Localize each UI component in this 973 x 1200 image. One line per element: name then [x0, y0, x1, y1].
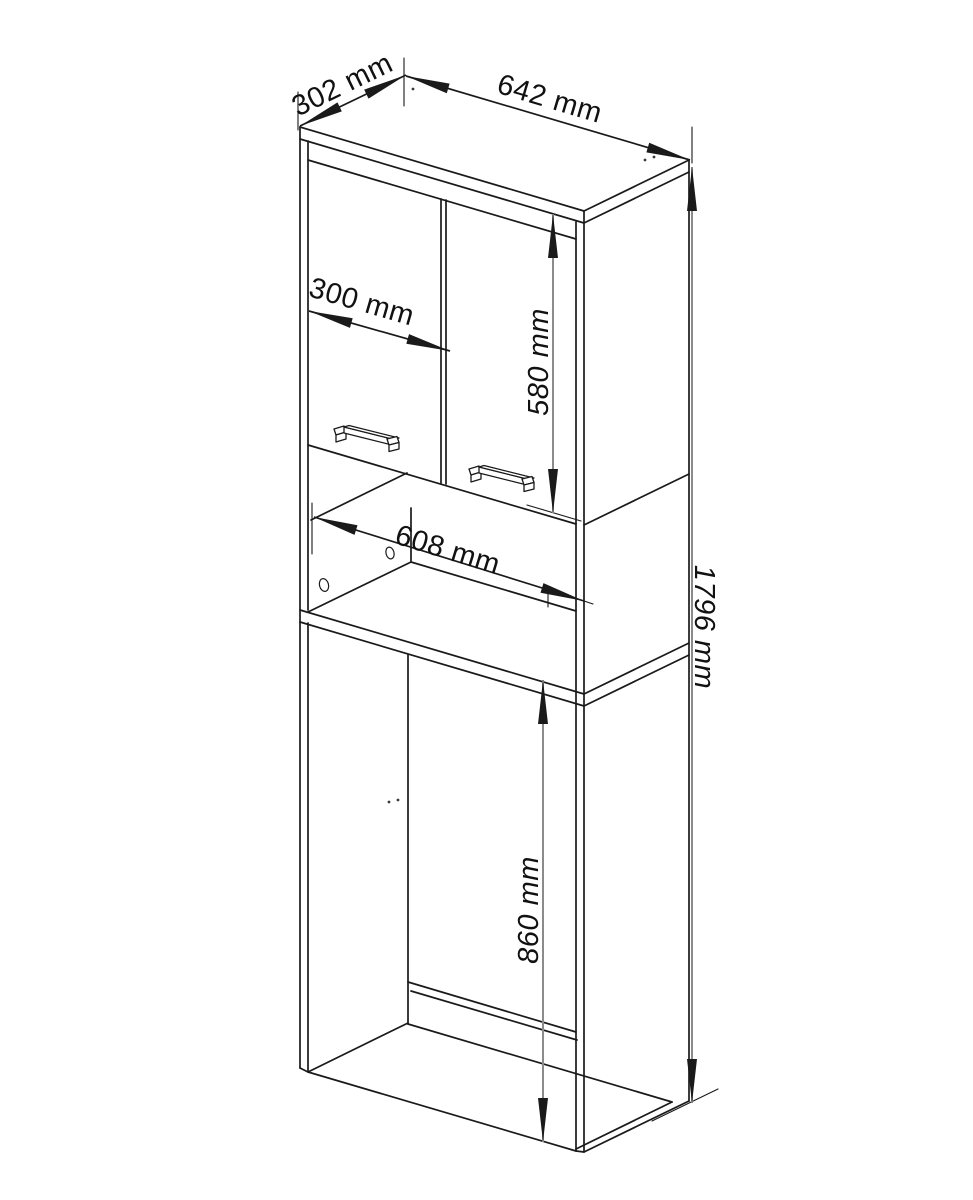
dimension-label-width: 642 mm	[493, 68, 605, 129]
dimension-label-niche-width: 608 mm	[391, 519, 503, 581]
dimension-label-opening-height: 860 mm	[513, 856, 545, 964]
cabinet-outline	[300, 127, 689, 1152]
dimension-label-total-height: 1796 mm	[688, 565, 720, 689]
cabinet-technical-drawing: 302 mm 642 mm 300 mm 608 mm 580 mm 860 m…	[0, 0, 973, 1200]
dimension-lines	[300, 75, 692, 1142]
extension-lines	[298, 58, 718, 1121]
dimension-label-depth: 302 mm	[287, 47, 398, 123]
dimension-labels: 302 mm 642 mm 300 mm 608 mm 580 mm 860 m…	[287, 47, 720, 964]
dimension-label-door-height: 580 mm	[523, 308, 555, 416]
shelf-pin-holes	[318, 546, 395, 592]
dimension-label-door-width: 300 mm	[305, 272, 417, 332]
drawing-canvas: 302 mm 642 mm 300 mm 608 mm 580 mm 860 m…	[0, 0, 973, 1200]
door-handle-left	[334, 426, 399, 452]
door-handle-right	[469, 466, 534, 492]
